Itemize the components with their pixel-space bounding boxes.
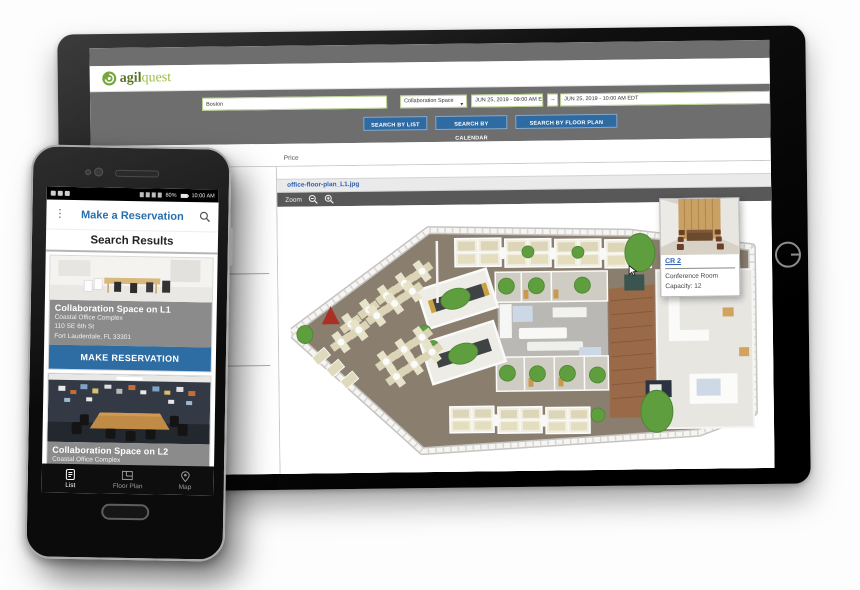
search-icon[interactable] [199,211,210,222]
date-range-arrow-icon: → [547,93,558,106]
alarm-icon [139,192,143,197]
bluetooth-icon [145,192,149,197]
chevron-down-icon: ▼ [460,99,465,109]
search-by-list-button[interactable]: SEARCH BY LIST [363,116,427,131]
zoom-out-icon[interactable] [308,194,318,204]
card-photo-l1 [50,256,213,303]
nav-item-floor-plan[interactable]: Floor Plan [99,465,157,495]
phone-home-button[interactable] [101,504,149,521]
room-popup: CR 2 Conference Room Capacity: 12 [659,197,740,296]
room-marker[interactable] [641,390,674,432]
results-title: Search Results [46,234,218,255]
room-capacity: Capacity: 12 [665,281,735,292]
floor-plan-icon [122,469,133,480]
floorplan-canvas[interactable]: CR 2 Conference Room Capacity: 12 [277,201,774,475]
price-column-header[interactable]: Price [284,155,299,162]
signal-icon [157,192,161,197]
search-bar: Collaboration Space▼ JUN 25, 2019 - 09:0… [90,84,771,146]
battery-percent: 80% [165,192,176,198]
phone-camera [94,167,103,176]
card-city: Fort Lauderdale, FL 33301 [54,332,206,344]
agilquest-logo-icon [102,71,117,86]
floorplan-panel: office-floor-plan_L1.jpg Zoom [277,161,775,475]
nav-item-map[interactable]: Map [156,466,214,496]
room-name-link[interactable]: CR 2 [665,257,735,265]
status-time: 10:00 AM [191,193,214,199]
result-card-l2[interactable]: Collaboration Space on L2 Coastal Office… [46,373,212,472]
phone-screen: 80% 10:00 AM ⋮ Make a Reservation Search… [42,187,219,496]
list-icon [65,468,76,479]
zoom-label: Zoom [285,196,302,203]
logo-text-quest: quest [141,70,171,85]
agilquest-logo: agilquest [102,70,172,87]
card-photo-l2 [47,374,210,445]
end-datetime-field[interactable]: JUN 25, 2019 - 10:00 AM EDT [560,91,770,107]
notification-icon [58,191,63,196]
stage: agilquest Collaboration Space▼ JUN 25, 2… [0,0,860,590]
notification-icon [65,191,70,196]
space-type-select[interactable]: Collaboration Space▼ [400,95,467,109]
phone-device: 80% 10:00 AM ⋮ Make a Reservation Search… [24,144,231,561]
menu-kebab-icon[interactable]: ⋮ [54,209,65,220]
phone-earpiece [115,170,159,178]
floorplan-file-tab[interactable]: office-floor-plan_L1.jpg [287,181,359,189]
result-card-l1[interactable]: Collaboration Space on L1 Coastal Office… [48,255,214,373]
search-by-calendar-button[interactable]: SEARCH BY CALENDAR [435,115,507,130]
nav-item-list[interactable]: List [42,464,100,494]
make-reservation-button[interactable]: MAKE RESERVATION [49,345,211,372]
phone-sensor-dot [85,169,91,175]
battery-icon [180,193,187,197]
app-header: ⋮ Make a Reservation [46,200,218,233]
app-title: Make a Reservation [65,208,199,222]
card-caption: Collaboration Space on L1 Coastal Office… [49,300,212,348]
tablet-home-button[interactable] [775,242,801,268]
logo-text-agil: agil [120,70,142,85]
room-popup-photo [660,198,739,255]
bottom-nav: List Floor Plan Map [42,464,214,496]
notification-icon [51,191,56,196]
popup-divider [665,267,735,269]
phone-power-button[interactable] [229,228,234,266]
start-datetime-field[interactable]: JUN 25, 2019 - 09:00 AM EDT [471,94,543,108]
map-pin-icon [180,470,191,481]
search-by-floorplan-button[interactable]: SEARCH BY FLOOR PLAN [515,114,617,129]
mouse-cursor-icon [627,264,639,276]
wifi-icon [151,192,155,197]
location-input[interactable] [202,96,387,111]
zoom-in-icon[interactable] [324,194,334,204]
